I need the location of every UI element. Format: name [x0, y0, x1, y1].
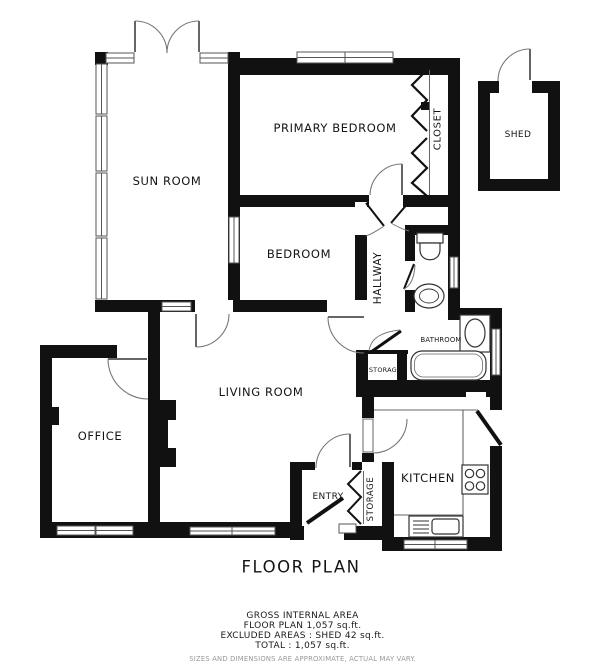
total-area: TOTAL : 1,057 sq.ft. [0, 641, 605, 651]
fireplace-opening [168, 420, 176, 448]
room-label-office: OFFICE [78, 429, 123, 443]
door-opening [195, 300, 233, 312]
room-label-primary-bedroom: PRIMARY BEDROOM [273, 121, 396, 135]
room-label-storage-hall: STORAGE [369, 366, 401, 374]
door-opening [304, 526, 344, 540]
wall [40, 345, 52, 538]
wall [356, 350, 368, 384]
wall [228, 52, 240, 312]
stove-icon [462, 465, 488, 494]
page-title: FLOOR PLAN [242, 558, 361, 577]
area-summary: GROSS INTERNAL AREA FLOOR PLAN 1,057 sq.… [0, 611, 605, 664]
door-icon [328, 317, 364, 353]
door-opening [327, 300, 367, 312]
room-label-shed: SHED [505, 130, 532, 140]
disclaimer-text: SIZES AND DIMENSIONS ARE APPROXIMATE, AC… [0, 654, 605, 664]
room-label-living-room: LIVING ROOM [219, 385, 304, 399]
toilet-icon [417, 233, 443, 260]
floor-plan-area: FLOOR PLAN 1,057 sq.ft. [0, 621, 605, 631]
door-icon [108, 359, 148, 399]
door-icon [196, 314, 229, 347]
excluded-areas: EXCLUDED AREAS : SHED 42 sq.ft. [0, 631, 605, 641]
door-opening [117, 345, 148, 358]
door-icon [498, 49, 530, 81]
wall [356, 380, 466, 397]
door-icon [366, 203, 384, 236]
door-icon [363, 419, 407, 453]
room-label-entry: ENTRY [312, 492, 343, 502]
french-door-icon [135, 21, 199, 53]
room-label-kitchen: KITCHEN [401, 471, 455, 485]
area-heading: GROSS INTERNAL AREA [0, 611, 605, 621]
wall [148, 345, 160, 522]
bathtub-icon [411, 351, 486, 380]
door-icon [369, 330, 401, 352]
door-icon [370, 164, 402, 195]
kitchen-sink-icon [409, 516, 463, 537]
room-label-bathroom: BATHROOM [421, 336, 462, 344]
wall [228, 195, 460, 207]
floor-plan-page: SUN ROOM PRIMARY BEDROOM CLOSET SHED BED… [0, 0, 605, 670]
room-label-closet: CLOSET [433, 108, 444, 150]
door-opening [369, 195, 403, 207]
door-opening [355, 202, 367, 235]
wall [478, 81, 490, 191]
storage-bifold-icon [348, 471, 361, 524]
room-label-bedroom: BEDROOM [267, 247, 331, 261]
door-opening [499, 81, 532, 93]
wall [448, 58, 460, 198]
wall [548, 81, 560, 191]
room-label-sun-room: SUN ROOM [133, 174, 202, 188]
closet-bifold-icon [412, 70, 427, 131]
wall [478, 179, 560, 191]
bathroom-sink-icon [460, 315, 490, 352]
pedestal-sink-icon [414, 284, 444, 308]
room-label-hallway: HALLWAY [372, 252, 384, 305]
door-opening [133, 52, 200, 65]
closet-bifold-icon [412, 138, 427, 196]
door-opening [315, 462, 352, 470]
wall [148, 300, 160, 348]
wall-pillar [52, 407, 59, 425]
room-label-storage-entry: STORAGE [366, 477, 376, 522]
